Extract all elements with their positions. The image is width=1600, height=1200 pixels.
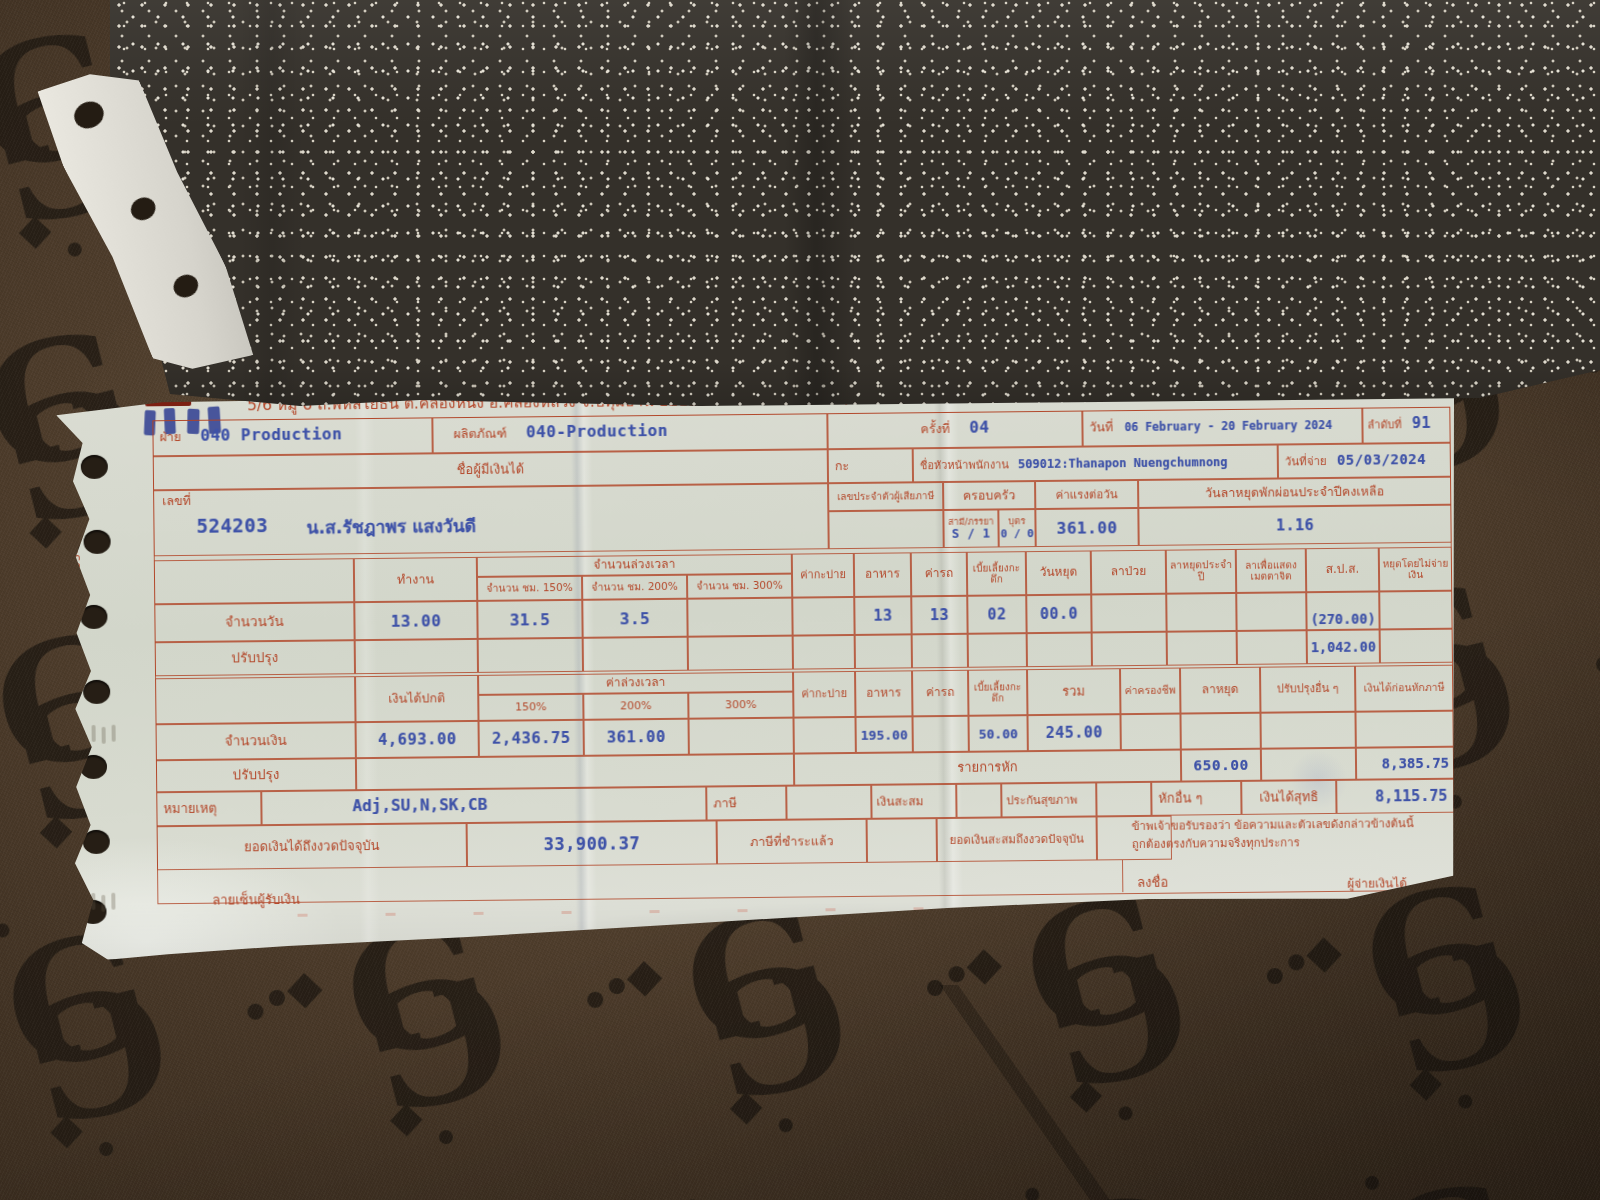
payer-label: ผู้จ่ายเงินได้	[1347, 877, 1407, 891]
empty-cell	[1166, 593, 1236, 632]
days-night-value: 02	[987, 605, 1006, 623]
tax-paid-label-cell: ภาษีที่ชำระแล้ว	[717, 819, 867, 865]
tractor-hole	[127, 194, 159, 225]
perforation-dashes	[298, 903, 1298, 916]
empty-cell	[356, 754, 794, 791]
ytd-savings-label-cell: ยอดเงินสะสมถึงงวดปัจจุบัน	[937, 816, 1097, 862]
other-adjust-header: ปรับปรุงอื่น ๆ	[1260, 666, 1355, 713]
remark-label: หมายเหตุ	[163, 801, 217, 817]
empty-cell	[1120, 714, 1180, 751]
tax-label: ภาษี	[713, 795, 737, 810]
holiday-label: วันหยุด	[1040, 566, 1078, 580]
meal-money-label: อาหาร	[866, 687, 901, 701]
pay-date-value: 05/03/2024	[1337, 451, 1426, 468]
empty-cell	[1260, 712, 1355, 749]
ot200-header: จำนวน ชม. 200%	[582, 575, 687, 600]
transport-header: ค่ารถ	[911, 552, 967, 597]
days-holiday-value: 00.0	[1040, 605, 1078, 623]
certification-text: ข้าพเจ้าขอรับรองว่า ข้อความและตัวเลขดังก…	[1132, 815, 1452, 854]
empty-cell	[687, 598, 792, 637]
days-row-label-cell: จำนวนวัน	[154, 602, 354, 642]
work-header: ทำงาน	[354, 557, 477, 602]
amount-ot200-value: 361.00	[607, 728, 666, 747]
empty-cell	[155, 676, 355, 724]
sick-leave-label: ลาป่วย	[1111, 565, 1147, 579]
family-header-cell: ครอบครัว	[943, 481, 1035, 510]
annual-leave-header: ลาหยุดประจำปี	[1166, 549, 1236, 594]
ot300-header: จำนวน ชม. 300%	[687, 574, 792, 599]
children-label: บุตร	[1008, 516, 1025, 527]
department-label: ฝ่าย	[159, 429, 181, 444]
days-adjust-label-cell: ปรับปรุง	[155, 640, 355, 676]
empty-cell	[912, 634, 968, 669]
money-adjust-label-cell: ปรับปรุง	[156, 758, 356, 792]
date-range-label: วันที่	[1089, 419, 1113, 434]
days-night-cell: 02	[967, 595, 1026, 634]
empty-cell	[478, 638, 583, 673]
days-transport-cell: 13	[911, 596, 967, 635]
savings-label-cell: เงินสะสม	[871, 784, 956, 819]
children-value: 0 / 0	[1000, 527, 1033, 540]
torn-slit	[92, 725, 96, 742]
night-allowance-label: เบี้ยเลี้ยงกะดึก	[970, 562, 1023, 585]
annual-leave-header-label: ลาหยุดประจำปี	[1169, 559, 1233, 583]
period-value: 04	[969, 418, 989, 437]
amount-total-value: 245.00	[1045, 723, 1102, 742]
period-cell: ครั้งที่ 04	[827, 411, 1082, 450]
transport-money-header: ค่ารถ	[912, 670, 968, 717]
empty-cell	[1380, 629, 1453, 664]
children-cell: บุตร 0 / 0	[998, 509, 1035, 547]
tax-paid-label: ภาษีที่ชำระแล้ว	[750, 834, 834, 849]
unpaid-leave-header: หยุดโดยไม่จ่ายเงิน	[1379, 547, 1452, 592]
net-income-value-cell: 8,115.75	[1336, 779, 1454, 814]
empty-cell	[355, 639, 478, 674]
pre-tax-value: 8,385.75	[1381, 755, 1449, 772]
empty-cell	[1091, 594, 1166, 633]
days-transport-value: 13	[930, 606, 949, 624]
ot150-header: จำนวน ชม. 150%	[477, 576, 582, 601]
ot200-label: จำนวน ชม. 200%	[591, 581, 678, 594]
night-money-header: เบี้ยเลี้ยงกะดึก	[968, 669, 1027, 716]
savings-label: เงินสะสม	[876, 794, 923, 808]
spouse-label: สามี/ภรรยา	[948, 516, 994, 527]
ot200-money-header: 200%	[583, 693, 688, 720]
evening-shift-header: ค่ากะบ่าย	[792, 553, 854, 598]
overtime-group-label: จำนวนล่วงเวลา	[593, 558, 675, 572]
total-header: รวม	[1027, 668, 1120, 715]
payee-header-label: ชื่อผู้มีเงินได้	[457, 462, 525, 477]
employee-name: น.ส.รัชฎาพร แสงวันดี	[306, 512, 476, 542]
remark-label-cell: หมายเหตุ	[156, 791, 261, 826]
empty-cell	[688, 636, 793, 671]
date-range-value: 06 February - 20 February 2024	[1124, 418, 1332, 434]
other-adjust-label: ปรับปรุงอื่น ๆ	[1277, 683, 1339, 696]
amount-ot150-cell: 2,436.75	[479, 720, 584, 757]
tractor-hole	[83, 530, 110, 554]
payslip-paper: ด0001-03-0260 5/6 หมู่ 6 ถ.พหลโยธิน ต.คล…	[42, 381, 1468, 961]
net-income-label: เงินได้สุทธิ	[1259, 790, 1318, 805]
empty-cell	[867, 818, 937, 863]
supervisor-value: 509012:Thanapon Nuengchumnong	[1018, 455, 1228, 471]
empty-cell	[1261, 748, 1356, 781]
date-range-cell: วันที่ 06 February - 20 February 2024	[1082, 408, 1362, 447]
days-ot150-value: 31.5	[510, 610, 551, 629]
empty-cell	[689, 718, 794, 755]
amount-night-value: 50.00	[979, 726, 1018, 741]
amount-ot150-value: 2,436.75	[492, 729, 571, 748]
tax-id-value-cell	[828, 510, 943, 549]
empty-cell	[1237, 630, 1307, 665]
ytd-income-label-cell: ยอดเงินได้ถึงงวดปัจจุบัน	[157, 823, 467, 870]
other-deductions-label: หักอื่น ๆ	[1158, 790, 1202, 805]
deduction-value: 650.00	[1193, 757, 1249, 774]
sso-label: ส.ป.ส.	[1326, 563, 1360, 577]
empty-cell	[912, 716, 968, 753]
spouse-cell: สามี/ภรรยา S / 1	[943, 509, 998, 548]
annual-leave-header-cell: วันลาหยุดพักผ่อนประจำปีคงเหลือ	[1138, 477, 1451, 508]
employee-number-label: เลขที่	[162, 494, 191, 508]
days-adjust-label: ปรับปรุง	[231, 650, 278, 666]
compassionate-leave-label: ลาเพื่อแสดงเมตตาจิต	[1239, 559, 1303, 582]
empty-cell	[792, 597, 854, 636]
amount-row-label: จำนวนเงิน	[225, 733, 287, 749]
empty-cell	[583, 637, 688, 672]
tax-id-header-cell: เลขประจำตัวผู้เสียภาษี	[828, 482, 943, 511]
employee-number: 524203	[196, 514, 268, 537]
adjust-sso-cell: 1,042.00	[1307, 629, 1380, 664]
certification-line2: ถูกต้องตรงกับความจริงทุกประการ	[1132, 833, 1452, 854]
annual-leave-value-cell: 1.16	[1138, 505, 1451, 546]
product-value: 040-Production	[526, 421, 668, 441]
base-pay-header: เงินได้ปกติ	[355, 675, 478, 722]
days-sso-cell: (270.00)	[1306, 591, 1379, 630]
health-label-cell: ประกันสุขภาพ	[1001, 782, 1096, 817]
annual-leave-value: 1.16	[1276, 516, 1314, 534]
sequence-value: 91	[1412, 414, 1431, 432]
tractor-hole	[70, 97, 108, 133]
deductions-header-cell: รายการหัก	[794, 750, 1181, 786]
days-meal-value: 13	[873, 607, 892, 625]
night-money-label: เบี้ยเลี้ยงกะดึก	[971, 681, 1024, 704]
work-header-label: ทำงาน	[397, 572, 434, 586]
tractor-hole	[81, 455, 108, 479]
amount-meal-cell: 195.00	[855, 716, 912, 753]
ot150-money-label: 150%	[515, 701, 547, 714]
leave-money-label: ลาหยุด	[1202, 683, 1239, 697]
daily-wage-value: 361.00	[1057, 518, 1118, 538]
sequence-cell: ลำดับที่ 91	[1362, 407, 1450, 444]
amount-row-label-cell: จำนวนเงิน	[156, 722, 356, 760]
product-cell: ผลิตภัณฑ์ 040-Production	[432, 413, 827, 453]
days-holiday-cell: 00.0	[1026, 594, 1091, 633]
empty-cell	[1092, 632, 1167, 667]
empty-cell	[1236, 592, 1306, 631]
days-ot150-cell: 31.5	[477, 600, 582, 639]
amount-base-cell: 4,693.00	[356, 721, 479, 758]
remark-value-cell: Adj,SU,N,SK,CB	[261, 787, 706, 826]
ot300-label: จำนวน ชม. 300%	[696, 580, 783, 593]
amount-total-cell: 245.00	[1027, 714, 1120, 751]
ytd-income-value-cell: 33,900.37	[467, 820, 717, 867]
tractor-hole	[83, 680, 110, 704]
empty-cell	[968, 633, 1027, 668]
tractor-hole	[80, 605, 107, 629]
daily-wage-value-cell: 361.00	[1035, 508, 1138, 547]
remark-value: Adj,SU,N,SK,CB	[352, 795, 487, 815]
pay-date-label: วันที่จ่าย	[1285, 454, 1327, 468]
empty-cell	[1379, 591, 1452, 630]
empty-cell	[1096, 782, 1151, 817]
sequence-label: ลำดับที่	[1367, 418, 1401, 431]
meal-money-header: อาหาร	[855, 670, 912, 717]
tractor-hole	[80, 755, 107, 779]
empty-cell	[855, 634, 912, 669]
torn-slit	[112, 725, 116, 742]
amount-base-value: 4,693.00	[378, 730, 457, 749]
daily-wage-label: ค่าแรงต่อวัน	[1056, 488, 1118, 502]
torn-slit	[111, 893, 115, 910]
empty-cell	[1027, 632, 1092, 667]
ot300-money-label: 300%	[725, 699, 757, 712]
days-work-cell: 13.00	[354, 601, 477, 640]
evening-shift-label: ค่ากะบ่าย	[800, 569, 846, 582]
days-work-value: 13.00	[391, 611, 442, 631]
empty-cell	[793, 635, 855, 670]
deduction-value-cell: 650.00	[1181, 749, 1261, 782]
pre-tax-value-cell: 8,385.75	[1356, 747, 1454, 780]
health-insurance-label: ประกันสุขภาพ	[1006, 793, 1077, 808]
days-sso-value: (270.00)	[1310, 610, 1375, 627]
meal-header: อาหาร	[854, 552, 911, 597]
shift-label: กะ	[835, 458, 849, 473]
supervisor-cell: ชื่อหัวหน้าพนักงาน 509012:Thanapon Nueng…	[913, 445, 1278, 483]
days-row-label: จำนวนวัน	[225, 614, 283, 630]
ot150-label: จำนวน ชม. 150%	[486, 582, 573, 595]
daily-wage-header-cell: ค่าแรงต่อวัน	[1035, 480, 1138, 509]
other-deductions-label-cell: หักอื่น ๆ	[1151, 781, 1241, 816]
total-label: รวม	[1062, 684, 1085, 699]
amount-meal-value: 195.00	[861, 727, 908, 742]
days-ot200-value: 3.5	[620, 609, 651, 628]
tractor-hole	[170, 271, 202, 302]
evening-money-header: ค่ากะบ่าย	[793, 671, 855, 718]
pre-tax-label: เงินได้ก่อนหักภาษี	[1364, 682, 1445, 695]
empty-cell	[793, 717, 855, 754]
form-code-vertical: ด0001-03-0260	[67, 459, 87, 614]
supervisor-label: ชื่อหัวหน้าพนักงาน	[920, 458, 1009, 472]
adjust-sso-value: 1,042.00	[1311, 638, 1376, 655]
ot300-money-header: 300%	[688, 692, 793, 719]
holiday-header: วันหยุด	[1026, 550, 1091, 595]
product-label: ผลิตภัณฑ์	[453, 426, 506, 442]
torn-slit	[102, 727, 106, 744]
unpaid-leave-label: หยุดโดยไม่จ่ายเงิน	[1382, 558, 1449, 581]
amount-night-cell: 50.00	[968, 715, 1027, 752]
tractor-hole	[83, 830, 110, 854]
base-pay-label: เงินได้ปกติ	[388, 691, 445, 706]
pre-tax-header: เงินได้ก่อนหักภาษี	[1355, 665, 1453, 712]
sick-leave-header: ลาป่วย	[1091, 550, 1166, 595]
sign-label: ลงชื่อ	[1137, 876, 1168, 891]
shift-cell: กะ	[828, 448, 913, 483]
ot200-money-label: 200%	[620, 700, 652, 713]
empty-cell	[786, 785, 871, 820]
employee-cell: เลขที่ 524203 น.ส.รัชฎาพร แสงวันดี	[153, 483, 829, 556]
empty-cell	[1167, 631, 1237, 666]
department-value: 040 Production	[200, 424, 342, 444]
empty-cell	[1180, 713, 1260, 750]
ot-money-group-label: ค่าล่วงเวลา	[606, 676, 666, 690]
days-meal-cell: 13	[854, 596, 911, 635]
sso-header: ส.ป.ส.	[1306, 547, 1379, 592]
department-cell: ฝ่าย 040 Production	[152, 417, 432, 456]
meal-label: อาหาร	[865, 568, 900, 582]
ot150-money-header: 150%	[478, 694, 583, 721]
empty-cell	[1355, 711, 1453, 748]
recipient-signature-label: ลายเซ็นผู้รับเงิน	[212, 893, 300, 908]
ytd-savings-label: ยอดเงินสะสมถึงงวดปัจจุบัน	[950, 832, 1085, 846]
money-adjust-label: ปรับปรุง	[233, 767, 280, 783]
net-income-value: 8,115.75	[1375, 787, 1447, 806]
transport-label: ค่ารถ	[925, 567, 954, 581]
night-allowance-header: เบี้ยเลี้ยงกะดึก	[967, 551, 1026, 596]
amount-ot200-cell: 361.00	[584, 719, 689, 756]
cost-of-living-header: ค่าครองชีพ	[1120, 668, 1180, 715]
family-label: ครอบครัว	[963, 488, 1016, 503]
period-label: ครั้งที่	[921, 421, 951, 436]
net-income-label-cell: เงินได้สุทธิ	[1241, 780, 1336, 815]
cost-of-living-label: ค่าครองชีพ	[1125, 685, 1176, 697]
compassionate-leave-header: ลาเพื่อแสดงเมตตาจิต	[1236, 548, 1306, 593]
pay-date-cell: วันที่จ่าย 05/03/2024	[1278, 443, 1451, 479]
empty-cell	[956, 783, 1001, 817]
ytd-income-label: ยอดเงินได้ถึงงวดปัจจุบัน	[244, 839, 380, 855]
annual-leave-label: วันลาหยุดพักผ่อนประจำปีคงเหลือ	[1205, 484, 1384, 500]
torn-slit	[101, 895, 105, 912]
leave-money-header: ลาหยุด	[1180, 667, 1260, 714]
torn-slit	[91, 893, 95, 910]
days-ot200-cell: 3.5	[582, 599, 687, 638]
payslip: ด0001-03-0260 5/6 หมู่ 6 ถ.พหลโยธิน ต.คล…	[42, 381, 1468, 961]
transport-money-label: ค่ารถ	[926, 686, 955, 700]
empty-cell	[154, 558, 354, 604]
deductions-label: รายการหัก	[957, 760, 1018, 775]
tax-id-label: เลขประจำตัวผู้เสียภาษี	[837, 491, 934, 503]
certification-line1: ข้าพเจ้าขอรับรองว่า ข้อความและตัวเลขดังก…	[1132, 815, 1452, 836]
spouse-value: S / 1	[952, 527, 991, 541]
evening-money-label: ค่ากะบ่าย	[801, 688, 847, 701]
tax-label-cell: ภาษี	[706, 786, 786, 821]
ytd-income-value: 33,900.37	[543, 833, 640, 854]
